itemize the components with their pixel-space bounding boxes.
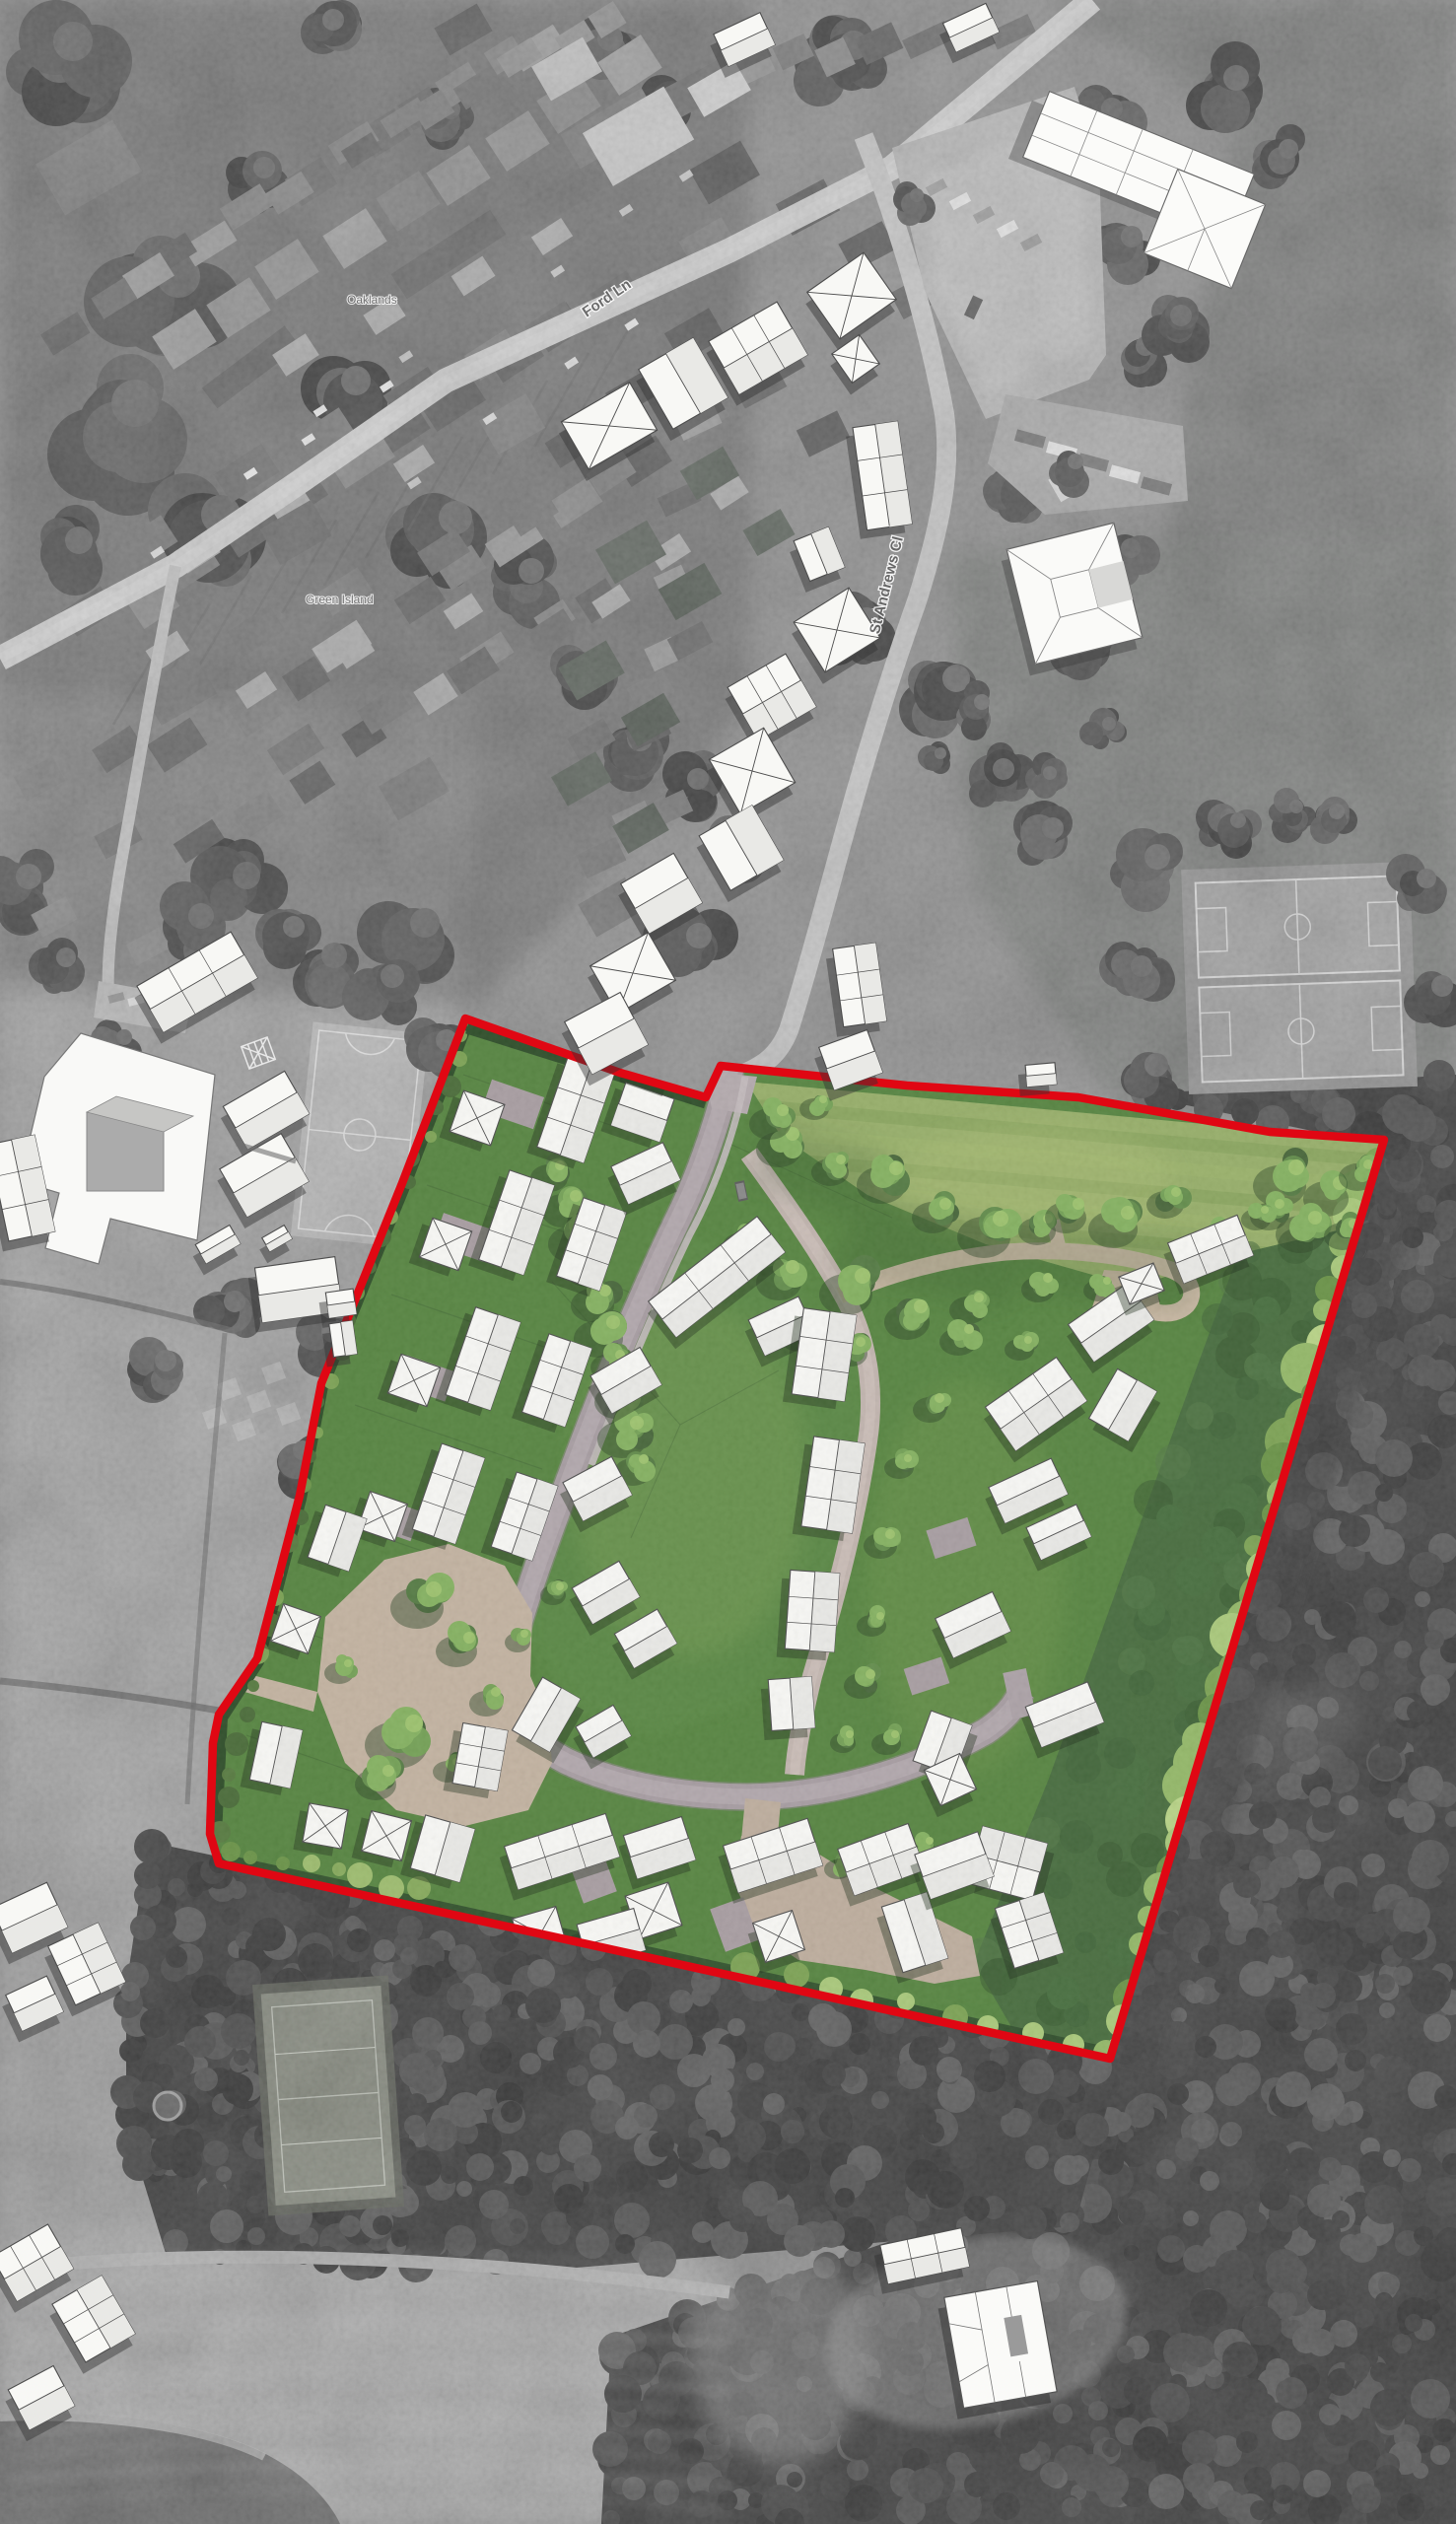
svg-text:Oaklands: Oaklands — [347, 293, 397, 307]
svg-text:Green Island: Green Island — [306, 593, 374, 606]
